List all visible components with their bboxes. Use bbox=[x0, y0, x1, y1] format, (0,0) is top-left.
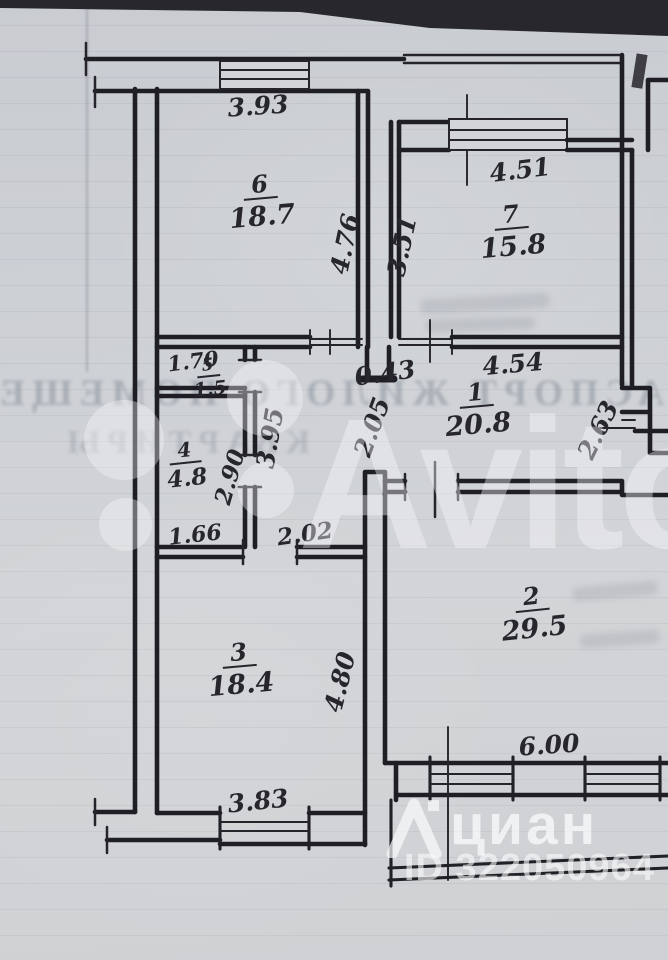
room-7-area: 15.8 bbox=[479, 227, 547, 266]
room-3-area: 18.4 bbox=[207, 665, 275, 704]
dim-width-166: 1.66 bbox=[167, 519, 223, 550]
room-5-area: 1.5 bbox=[192, 375, 227, 402]
cian-id-watermark: ID 322050964 bbox=[404, 849, 655, 887]
room-6-area: 18.7 bbox=[228, 197, 296, 236]
room-4-label: 4 4.8 bbox=[163, 438, 208, 494]
room-2-label: 2 29.5 bbox=[497, 580, 569, 648]
avito-watermark: Avito bbox=[298, 392, 668, 578]
room-4-number: 4 bbox=[167, 438, 201, 465]
room-6-number: 6 bbox=[241, 170, 278, 201]
avito-logo-dot bbox=[99, 498, 152, 551]
avito-logo-dot bbox=[227, 360, 303, 436]
room-7-number: 7 bbox=[492, 200, 529, 231]
dim-width-600: 6.00 bbox=[518, 728, 581, 761]
room-3-label: 3 18.4 bbox=[205, 637, 276, 704]
avito-logo-dot bbox=[84, 400, 164, 480]
room-4-area: 4.8 bbox=[166, 462, 209, 494]
cian-watermark: циан bbox=[450, 797, 598, 854]
room-7-label: 7 15.8 bbox=[477, 199, 548, 266]
avito-logo-dot bbox=[238, 462, 294, 518]
photo-edge bbox=[0, 0, 668, 95]
room-3-number: 3 bbox=[220, 638, 257, 669]
room-2-area: 29.5 bbox=[500, 608, 569, 648]
floorplan-photo: ПАСПОРТ ЖИЛОГО ПОМЕЩЕНИ КВАРТИРЫ bbox=[0, 0, 668, 960]
room-6-label: 6 18.7 bbox=[226, 169, 297, 236]
dim-width-454: 4.54 bbox=[481, 347, 544, 381]
window-room7 bbox=[449, 119, 567, 150]
